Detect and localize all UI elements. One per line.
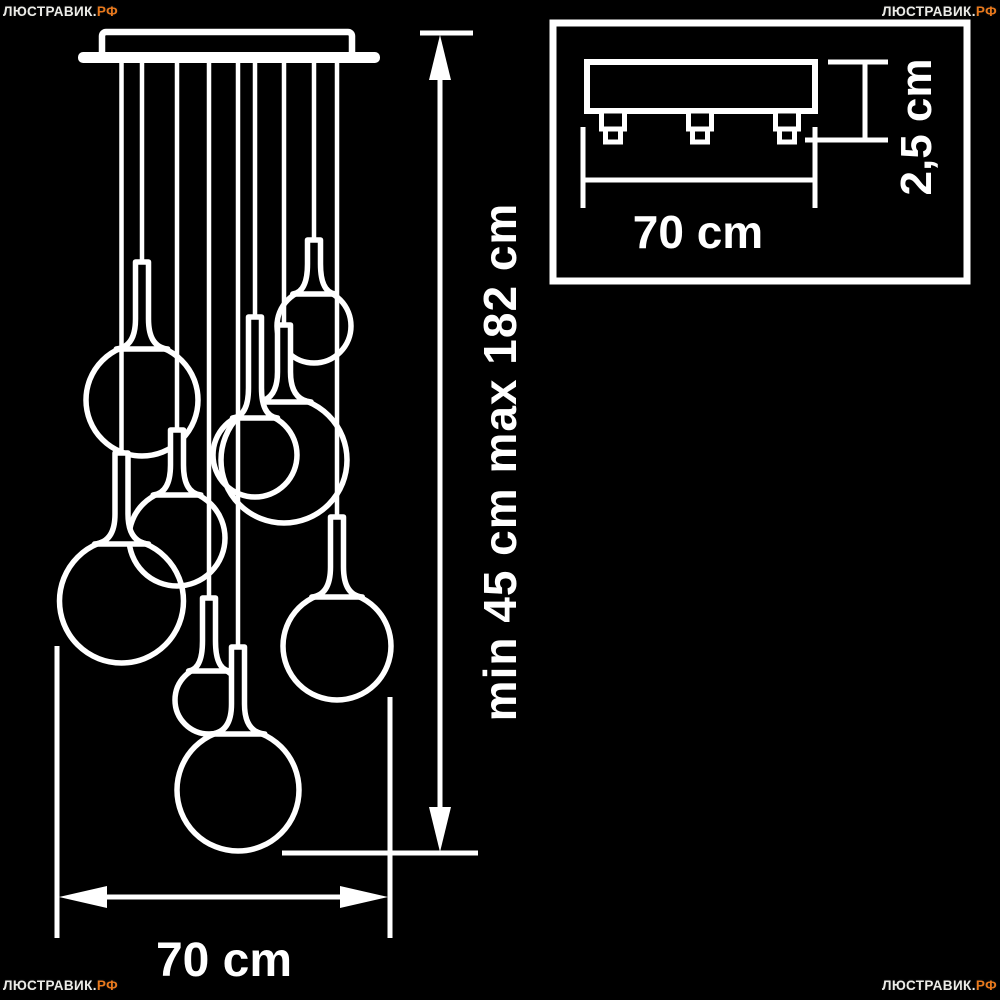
watermark-text: ЛЮСТРАВИК. xyxy=(882,978,976,993)
pendant-neck xyxy=(153,430,201,495)
inset-plate xyxy=(587,62,815,111)
pendant-globe xyxy=(60,539,184,663)
watermark-top-left: ЛЮСТРАВИК.РФ xyxy=(3,4,118,19)
inset-width-label: 70 cm xyxy=(633,209,763,255)
watermark-text: ЛЮСТРАВИК. xyxy=(3,4,97,19)
canopy-base-bar xyxy=(78,52,380,63)
height-range-label: min 45 cm max 182 cm xyxy=(477,203,523,722)
inset-cord-grip-top xyxy=(689,111,712,129)
width-dim-arrow-right xyxy=(340,886,388,908)
chandelier-dimension-diagram: ЛЮСТРАВИК.РФ ЛЮСТРАВИК.РФ ЛЮСТРАВИК.РФ Л… xyxy=(0,0,1000,1000)
inset-thickness-label: 2,5 cm xyxy=(895,59,939,196)
pendant-globe xyxy=(177,729,299,851)
watermark-top-right: ЛЮСТРАВИК.РФ xyxy=(882,4,997,19)
inset-cord-grip-bottom xyxy=(780,129,795,142)
inset-cord-grip-top xyxy=(776,111,799,129)
bottom-width-label: 70 cm xyxy=(156,937,292,985)
pendant-neck xyxy=(189,598,230,671)
pendant-neck xyxy=(312,517,362,597)
watermark-suffix: РФ xyxy=(97,4,118,19)
inset-cord-grip-top xyxy=(602,111,625,129)
watermark-text: ЛЮСТРАВИК. xyxy=(882,4,976,19)
watermark-bottom-right: ЛЮСТРАВИК.РФ xyxy=(882,978,997,993)
inset-cord-grip-bottom xyxy=(693,129,708,142)
inset-cord-grip-bottom xyxy=(606,129,621,142)
pendant-neck xyxy=(293,240,335,294)
pendant-neck xyxy=(95,453,149,544)
watermark-suffix: РФ xyxy=(97,978,118,993)
width-dim-arrow-left xyxy=(59,886,107,908)
watermark-suffix: РФ xyxy=(976,4,997,19)
watermark-suffix: РФ xyxy=(976,978,997,993)
watermark-bottom-left: ЛЮСТРАВИК.РФ xyxy=(3,978,118,993)
vertical-dim-arrow-up xyxy=(429,35,451,80)
pendant-neck xyxy=(116,262,167,349)
vertical-dim-arrow-down xyxy=(429,807,451,852)
pendant-globe xyxy=(283,592,391,700)
watermark-text: ЛЮСТРАВИК. xyxy=(3,978,97,993)
